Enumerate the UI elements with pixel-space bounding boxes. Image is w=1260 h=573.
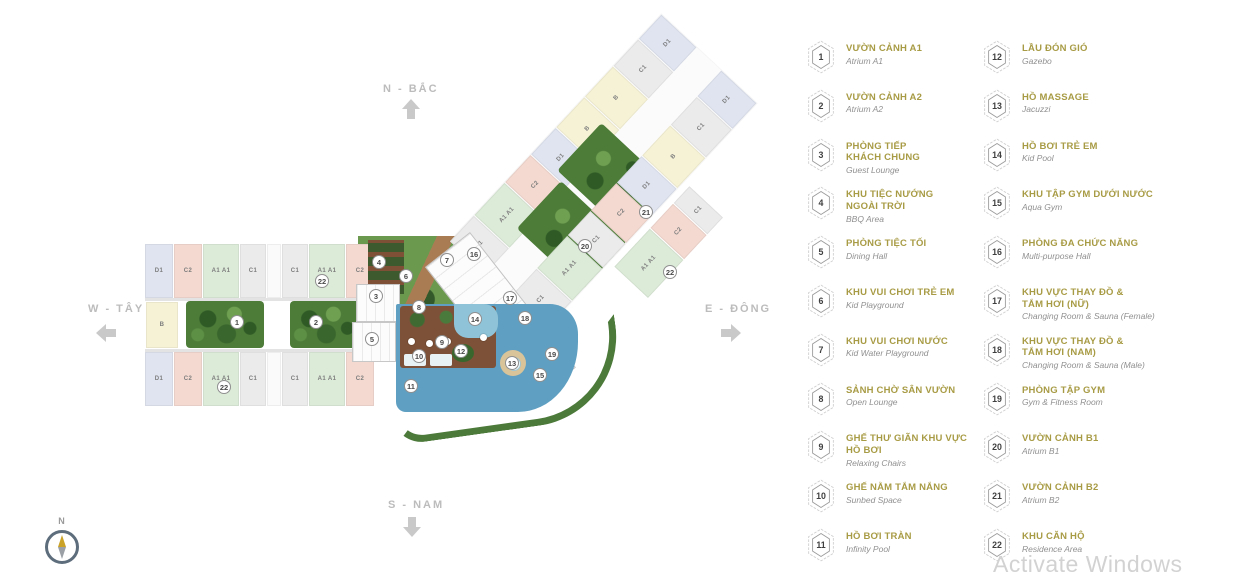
legend-subtitle: Atrium A2 (846, 105, 922, 114)
legend-subtitle: Kid Water Playground (846, 349, 948, 358)
legend-subtitle: Changing Room & Sauna (Male) (1022, 361, 1145, 370)
legend-item-7: 7 KHU VUI CHƠI NƯỚC Kid Water Playground (806, 333, 967, 382)
unit-block-c1: C1 (240, 352, 266, 406)
legend-subtitle: Changing Room & Sauna (Female) (1022, 312, 1155, 321)
legend-hexagon-badge: 5 (806, 235, 836, 269)
svg-text:12: 12 (992, 52, 1002, 62)
unit-block-a1-a1: A1 A1 (203, 244, 239, 298)
svg-text:7: 7 (819, 345, 824, 355)
legend-hexagon-badge: 14 (982, 138, 1012, 172)
unit-block-c1: C1 (282, 352, 308, 406)
legend-title: KHU CĂN HỘ (1022, 531, 1085, 543)
plan-marker-6: 6 (399, 269, 413, 283)
unit-label: B (657, 140, 690, 174)
unit-label: A1 A1 (309, 268, 345, 274)
legend-subtitle: Multi-purpose Hall (1022, 252, 1138, 261)
legend-title: GHẾ THƯ GIÃN KHU VỰCHỒ BƠI (846, 433, 967, 456)
svg-text:3: 3 (819, 150, 824, 160)
unit-block-a1-a1: A1 A1 (309, 352, 345, 406)
svg-text:13: 13 (992, 101, 1002, 111)
legend-title: KHU VỰC THAY ĐỒ &TẮM HƠI (NỮ) (1022, 287, 1155, 310)
legend-hexagon-badge: 15 (982, 186, 1012, 220)
legend-subtitle: Kid Playground (846, 301, 955, 310)
courtyard-atrium-a2 (290, 301, 360, 348)
plan-marker-12: 12 (454, 344, 468, 358)
courtyard-atrium-a1 (186, 301, 264, 348)
legend-hexagon-badge: 17 (982, 284, 1012, 318)
legend-subtitle: Atrium A1 (846, 57, 922, 66)
legend-item-5: 5 PHÒNG TIỆC TỐI Dining Hall (806, 235, 967, 284)
west-wing-bottom-row: D1C2A1 A1C1C1A1 A1C2 (145, 352, 374, 406)
plan-marker-17: 17 (503, 291, 517, 305)
unit-label: C1 (240, 268, 266, 274)
legend-subtitle: Atrium B2 (1022, 496, 1098, 505)
legend-title: GHẾ NẰM TẮM NẮNG (846, 482, 948, 494)
svg-text:19: 19 (992, 394, 1002, 404)
plan-marker-7: 7 (440, 253, 454, 267)
plan-marker-20: 20 (578, 239, 592, 253)
plan-marker-4: 4 (372, 255, 386, 269)
unit-label: C1 (629, 54, 658, 84)
svg-text:22: 22 (992, 540, 1002, 550)
legend-hexagon-badge: 12 (982, 40, 1012, 74)
plan-marker-22: 22 (217, 380, 231, 394)
unit-label: C1 (240, 376, 266, 382)
unit-block-c2: C2 (174, 352, 202, 406)
unit-block-d1: D1 (145, 352, 173, 406)
unit-label: A1 A1 (309, 376, 345, 382)
legend-item-16: 16 PHÒNG ĐA CHỨC NĂNG Multi-purpose Hall (982, 235, 1155, 284)
legend-item-19: 19 PHÒNG TẬP GYM Gym & Fitness Room (982, 382, 1155, 431)
legend-item-20: 20 VƯỜN CẢNH B1 Atrium B1 (982, 430, 1155, 479)
plan-marker-18: 18 (518, 311, 532, 325)
svg-text:8: 8 (819, 394, 824, 404)
legend-title: LẦU ĐÓN GIÓ (1022, 43, 1088, 55)
unit-label: D1 (654, 29, 681, 58)
svg-text:2: 2 (819, 101, 824, 111)
unit-label: D1 (633, 171, 662, 201)
legend-item-17: 17 KHU VỰC THAY ĐỒ &TẮM HƠI (NỮ) Changin… (982, 284, 1155, 333)
legend-title: PHÒNG ĐA CHỨC NĂNG (1022, 238, 1138, 250)
plan-marker-13: 13 (505, 356, 519, 370)
plan-marker-14: 14 (468, 312, 482, 326)
legend-hexagon-badge: 20 (982, 430, 1012, 464)
unit-label: C1 (686, 111, 716, 142)
west-wing-b-block: B (146, 302, 178, 348)
legend-hexagon-badge: 16 (982, 235, 1012, 269)
legend-item-21: 21 VƯỜN CẢNH B2 Atrium B2 (982, 479, 1155, 528)
legend-item-8: 8 SẢNH CHỜ SÂN VƯỜN Open Lounge (806, 382, 967, 431)
legend-title: KHU VUI CHƠI TRẺ EM (846, 287, 955, 299)
activate-windows-watermark: Activate Windows (993, 551, 1183, 573)
legend-title: HỒ MASSAGE (1022, 92, 1089, 104)
unit-label: C1 (282, 268, 308, 274)
unit-label: C1 (688, 200, 708, 221)
unit-label: C1 (282, 376, 308, 382)
pool-table (480, 334, 487, 341)
legend-title: KHU VỰC THAY ĐỒ &TẮM HƠI (NAM) (1022, 336, 1145, 359)
legend-title: PHÒNG TẬP GYM (1022, 385, 1105, 397)
plan-marker-11: 11 (404, 379, 418, 393)
svg-text:17: 17 (992, 296, 1002, 306)
legend-hexagon-badge: 13 (982, 89, 1012, 123)
unit-label: D1 (713, 85, 742, 115)
legend-title: HỒ BƠI TRÀN (846, 531, 912, 543)
site-plan-page: N - BẮC W - TÂY E - ĐÔNG S - NAM N C1A1 … (0, 0, 1260, 573)
legend-hexagon-badge: 1 (806, 40, 836, 74)
legend-item-6: 6 KHU VUI CHƠI TRẺ EM Kid Playground (806, 284, 967, 333)
unit-label: D1 (145, 376, 173, 382)
svg-text:11: 11 (816, 540, 825, 550)
legend-title: PHÒNG TIỆC TỐI (846, 238, 926, 250)
legend-subtitle: Guest Lounge (846, 166, 920, 175)
plan-marker-9: 9 (435, 335, 449, 349)
legend-subtitle: Gym & Fitness Room (1022, 398, 1105, 407)
unit-block-c2: C2 (174, 244, 202, 298)
plan-marker-1: 1 (230, 315, 244, 329)
unit-label: C2 (665, 217, 692, 246)
plan-marker-10: 10 (412, 349, 426, 363)
legend-subtitle: Aqua Gym (1022, 203, 1153, 212)
legend-title: VƯỜN CẢNH B1 (1022, 433, 1098, 445)
legend-title: HỒ BƠI TRẺ EM (1022, 141, 1098, 153)
legend-item-3: 3 PHÒNG TIẾPKHÁCH CHUNG Guest Lounge (806, 138, 967, 187)
legend-subtitle: Kid Pool (1022, 154, 1098, 163)
legend-subtitle: Jacuzzi (1022, 105, 1089, 114)
svg-text:14: 14 (992, 150, 1002, 160)
legend-title: VƯỜN CẢNH A1 (846, 43, 922, 55)
svg-text:20: 20 (992, 442, 1002, 452)
legend-hexagon-badge: 10 (806, 479, 836, 513)
corridor-block (267, 352, 281, 406)
legend-item-1: 1 VƯỜN CẢNH A1 Atrium A1 (806, 40, 967, 89)
legend-hexagon-badge: 18 (982, 333, 1012, 367)
plan-marker-19: 19 (545, 347, 559, 361)
plan-marker-16: 16 (467, 247, 481, 261)
svg-text:21: 21 (992, 491, 1002, 501)
legend-item-14: 14 HỒ BƠI TRẺ EM Kid Pool (982, 138, 1155, 187)
plan-marker-22: 22 (663, 265, 677, 279)
svg-text:10: 10 (816, 491, 826, 501)
plan-marker-22: 22 (315, 274, 329, 288)
legend-item-13: 13 HỒ MASSAGE Jacuzzi (982, 89, 1155, 138)
unit-label: A1 A1 (203, 268, 239, 274)
pool-table (408, 338, 415, 345)
legend-title: KHU TIỆC NƯỚNGNGOÀI TRỜI (846, 189, 933, 212)
svg-text:16: 16 (992, 247, 1002, 257)
legend-title: VƯỜN CẢNH B2 (1022, 482, 1098, 494)
legend-title: PHÒNG TIẾPKHÁCH CHUNG (846, 141, 920, 164)
unit-label: C2 (174, 268, 202, 274)
pool-table (426, 340, 433, 347)
legend-item-10: 10 GHẾ NẰM TẮM NẮNG Sunbed Space (806, 479, 967, 528)
svg-text:6: 6 (819, 296, 824, 306)
west-wing-top-row: D1C2A1 A1C1C1A1 A1C2 (145, 244, 374, 298)
unit-block-c1: C1 (240, 244, 266, 298)
unit-block-a1-a1: A1 A1 (309, 244, 345, 298)
plan-marker-3: 3 (369, 289, 383, 303)
legend-hexagon-badge: 6 (806, 284, 836, 318)
svg-text:5: 5 (819, 247, 824, 257)
plan-marker-2: 2 (309, 315, 323, 329)
legend-column-2: 12 LẦU ĐÓN GIÓ Gazebo 13 HỒ MASSAGE Jacu… (982, 40, 1155, 573)
legend-hexagon-badge: 9 (806, 430, 836, 464)
svg-text:9: 9 (819, 442, 824, 452)
legend-hexagon-badge: 8 (806, 382, 836, 416)
legend-subtitle: Open Lounge (846, 398, 955, 407)
svg-text:15: 15 (992, 198, 1002, 208)
legend-title: SẢNH CHỜ SÂN VƯỜN (846, 385, 955, 397)
floor-plan: C1A1 A1C2D1BBC1D1 C1A1 A1C1C2D1BC1D1 A1 … (0, 0, 800, 573)
legend-column-1: 1 VƯỜN CẢNH A1 Atrium A1 2 VƯỜN CẢNH A2 … (806, 40, 967, 573)
legend-subtitle: Atrium B1 (1022, 447, 1098, 456)
svg-text:1: 1 (819, 52, 824, 62)
legend-subtitle: Gazebo (1022, 57, 1088, 66)
legend-item-15: 15 KHU TẬP GYM DƯỚI NƯỚC Aqua Gym (982, 186, 1155, 235)
legend-subtitle: Relaxing Chairs (846, 459, 967, 468)
legend-item-2: 2 VƯỜN CẢNH A2 Atrium A2 (806, 89, 967, 138)
legend-item-18: 18 KHU VỰC THAY ĐỒ &TẮM HƠI (NAM) Changi… (982, 333, 1155, 382)
unit-label: A1 A1 (629, 243, 669, 285)
plan-marker-21: 21 (639, 205, 653, 219)
svg-text:4: 4 (819, 198, 824, 208)
walkway (145, 349, 374, 352)
legend-hexagon-badge: 7 (806, 333, 836, 367)
unit-block-a1-a1: A1 A1 (203, 352, 239, 406)
legend-subtitle: Sunbed Space (846, 496, 948, 505)
unit-label: B (600, 81, 633, 115)
legend-item-4: 4 KHU TIỆC NƯỚNGNGOÀI TRỜI BBQ Area (806, 186, 967, 235)
legend-hexagon-badge: 3 (806, 138, 836, 172)
unit-label: C2 (346, 376, 374, 382)
corridor-block (267, 244, 281, 298)
legend-title: VƯỜN CẢNH A2 (846, 92, 922, 104)
legend-subtitle: BBQ Area (846, 215, 933, 224)
cabana (430, 354, 452, 366)
svg-text:18: 18 (992, 345, 1002, 355)
legend-hexagon-badge: 19 (982, 382, 1012, 416)
unit-block-d1: D1 (145, 244, 173, 298)
legend-subtitle: Dining Hall (846, 252, 926, 261)
legend-subtitle: Infinity Pool (846, 545, 912, 554)
legend-hexagon-badge: 11 (806, 528, 836, 562)
unit-label: D1 (145, 268, 173, 274)
legend-item-9: 9 GHẾ THƯ GIÃN KHU VỰCHỒ BƠI Relaxing Ch… (806, 430, 967, 479)
legend-title: KHU VUI CHƠI NƯỚC (846, 336, 948, 348)
legend-hexagon-badge: 21 (982, 479, 1012, 513)
legend-hexagon-badge: 2 (806, 89, 836, 123)
legend-item-11: 11 HỒ BƠI TRÀN Infinity Pool (806, 528, 967, 573)
unit-block-c1: C1 (282, 244, 308, 298)
plan-marker-5: 5 (365, 332, 379, 346)
unit-label: A1 A1 (553, 250, 587, 286)
unit-label: C2 (606, 197, 636, 228)
legend-hexagon-badge: 4 (806, 186, 836, 220)
legend-item-12: 12 LẦU ĐÓN GIÓ Gazebo (982, 40, 1155, 89)
plan-marker-8: 8 (412, 300, 426, 314)
plan-marker-15: 15 (533, 368, 547, 382)
legend-title: KHU TẬP GYM DƯỚI NƯỚC (1022, 189, 1153, 201)
unit-label: C2 (174, 376, 202, 382)
